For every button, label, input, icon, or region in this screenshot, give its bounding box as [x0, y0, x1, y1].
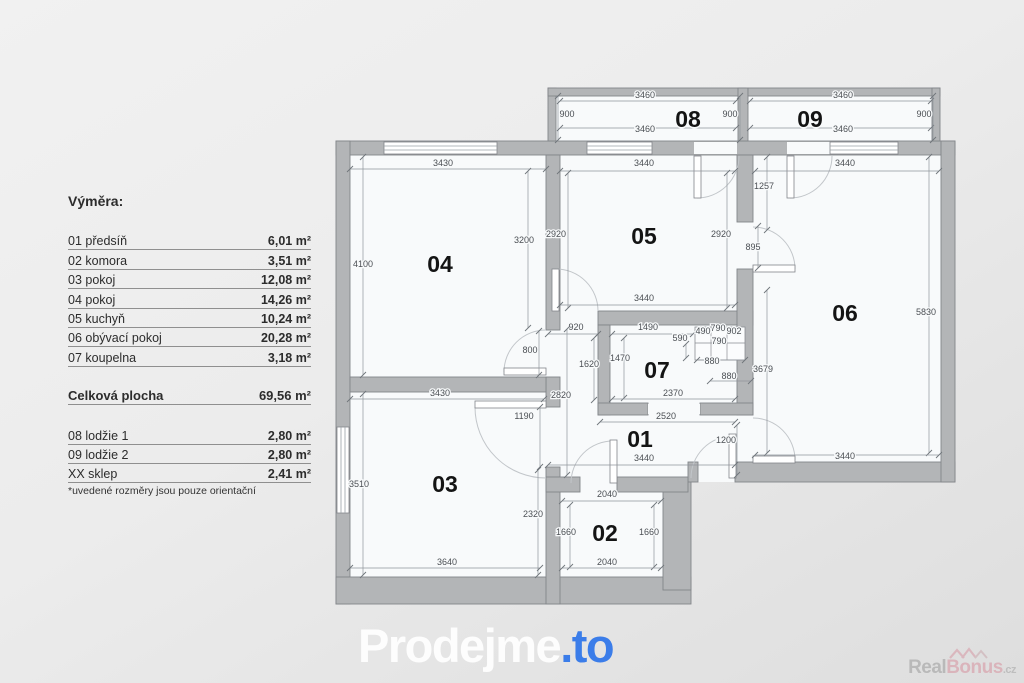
dimension-label: 3679: [753, 364, 773, 374]
dimension-label: 2040: [597, 557, 617, 567]
wall-bottom-left: [336, 577, 691, 604]
dimension-label: 790: [711, 336, 726, 346]
window-room03: [337, 427, 349, 513]
watermark-bonus: Bonus: [946, 657, 1003, 678]
dimension-label: 2920: [546, 229, 566, 239]
wall-05-06-upper: [737, 155, 753, 222]
wall-07-bottom-a: [598, 403, 648, 415]
dimension-label: 900: [916, 109, 931, 119]
window-room04: [384, 142, 497, 154]
dimension-label: 880: [704, 356, 719, 366]
dimension-label: 1490: [638, 322, 658, 332]
wall-05-bottom: [598, 311, 753, 325]
watermark-cz: .cz: [1003, 664, 1016, 676]
dimension-label: 5830: [916, 307, 936, 317]
dimension-label: 880: [721, 371, 736, 381]
dimension-label: 4100: [353, 259, 373, 269]
wall-bottom-right-b: [735, 462, 955, 482]
door-leaf-room05: [552, 269, 559, 311]
floorplan-svg: 9003460346090034603460900343041003200800…: [0, 0, 1024, 683]
dimension-label: 800: [522, 345, 537, 355]
wall-right: [941, 141, 955, 482]
wall-room02-right: [663, 480, 691, 590]
realbonus-watermark: RealBonus.cz: [908, 657, 1016, 679]
room-label-05: 05: [631, 223, 657, 249]
dimension-label: 3460: [833, 90, 853, 100]
prodejme-logo: Prodejme.to: [358, 618, 613, 673]
window-room06: [830, 142, 898, 154]
room-label-03: 03: [432, 471, 458, 497]
balcony-08-door-opening: [694, 142, 737, 154]
room-label-04: 04: [427, 251, 453, 277]
dimension-label: 2820: [551, 390, 571, 400]
door-leaf-balcony08: [694, 156, 701, 198]
dimension-label: 2370: [663, 388, 683, 398]
dimension-label: 3430: [433, 158, 453, 168]
wall-left: [336, 141, 350, 604]
door-leaf-balcony09: [787, 156, 794, 198]
dimension-label: 902: [726, 326, 741, 336]
wall-07-left: [598, 325, 610, 415]
door-leaf-room06-lower: [753, 456, 795, 463]
wall-07-bottom-b: [700, 403, 753, 415]
dimension-label: 2040: [597, 489, 617, 499]
dimension-label: 3440: [835, 158, 855, 168]
dimension-label: 900: [559, 109, 574, 119]
dimension-label: 490: [695, 326, 710, 336]
logo-main: Prodejme: [358, 619, 560, 672]
dimension-label: 3200: [514, 235, 534, 245]
dimension-label: 900: [722, 109, 737, 119]
wall-01-bottom-b: [617, 477, 688, 492]
dimension-label: 920: [568, 322, 583, 332]
door-leaf-room06-upper: [753, 265, 795, 272]
room-label-02: 02: [592, 520, 618, 546]
dimension-label: 3440: [634, 453, 654, 463]
dimension-label: 3460: [833, 124, 853, 134]
dimension-label: 3510: [349, 479, 369, 489]
dimension-label: 3430: [430, 388, 450, 398]
dimension-label: 895: [745, 242, 760, 252]
dimension-label: 790: [710, 323, 725, 333]
dimension-label: 2920: [711, 229, 731, 239]
dimension-label: 3460: [635, 90, 655, 100]
room-label-01: 01: [627, 426, 653, 452]
wall-01-bottom-a: [546, 477, 580, 492]
dimension-label: 2520: [656, 411, 676, 421]
room-label-06: 06: [832, 300, 858, 326]
watermark-real: Real: [908, 657, 946, 678]
dimension-label: 2320: [523, 509, 543, 519]
balcony-09-door-opening: [787, 142, 832, 154]
dimension-label: 3440: [634, 293, 654, 303]
dimension-label: 1660: [639, 527, 659, 537]
dimension-label: 1620: [579, 359, 599, 369]
room-label-07: 07: [644, 357, 670, 383]
dimension-label: 3440: [634, 158, 654, 168]
room-label-09: 09: [797, 106, 823, 132]
dimension-label: 590: [672, 333, 687, 343]
dimension-label: 1190: [514, 411, 533, 421]
door-leaf-room02: [610, 440, 617, 483]
dimension-label: 1470: [610, 353, 630, 363]
dimension-label: 3640: [437, 557, 457, 567]
dimension-label: 1200: [716, 435, 736, 445]
logo-suffix: .to: [560, 619, 613, 672]
dimension-label: 1257: [754, 181, 774, 191]
door-leaf-room03: [475, 401, 546, 408]
room-label-08: 08: [675, 106, 701, 132]
dimension-label: 3440: [835, 451, 855, 461]
dimension-label: 1660: [556, 527, 576, 537]
dimension-label: 3460: [635, 124, 655, 134]
window-room05: [587, 142, 652, 154]
